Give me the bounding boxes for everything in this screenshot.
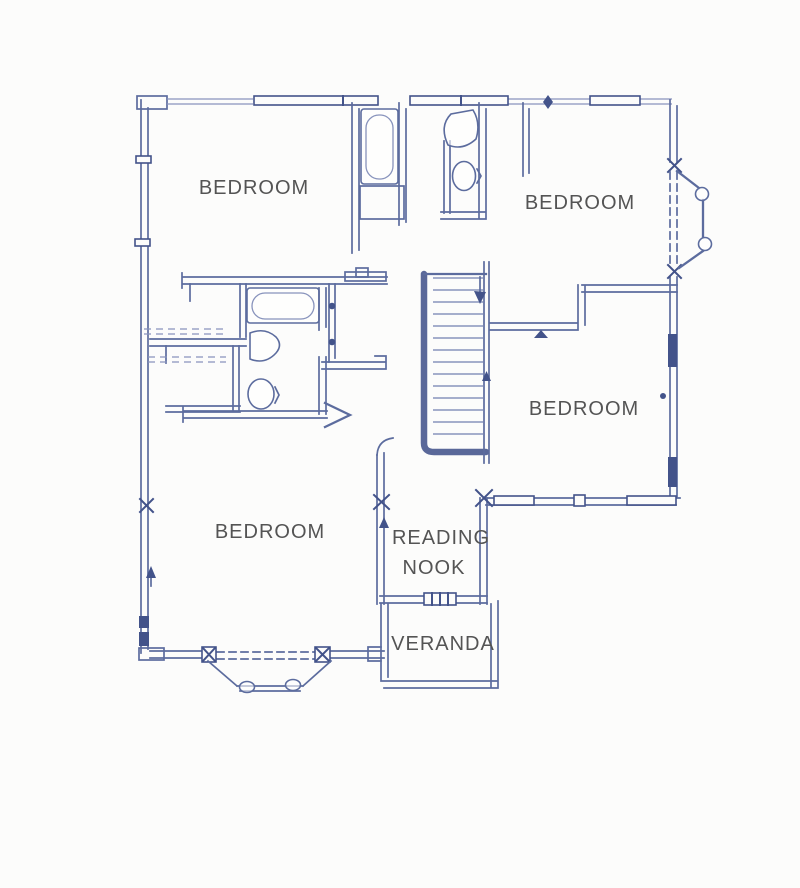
landing-walls	[490, 285, 677, 330]
bedroom-entry-wall	[183, 407, 327, 422]
bay-window-post-knob	[696, 188, 709, 201]
stair-rail	[424, 274, 486, 452]
sink-fixture	[444, 110, 478, 147]
top-wall-window	[254, 96, 378, 105]
room-label-bedroom-top-left: BEDROOM	[199, 177, 309, 199]
left-wall-window-block	[139, 632, 149, 646]
top-wall-diamond-marker	[543, 95, 553, 109]
staircase	[424, 262, 491, 463]
left-wall-window-block	[139, 616, 149, 628]
nook-wall-curved-end	[377, 438, 393, 455]
top-wall-window	[410, 96, 508, 105]
bay-window-bottom-left	[150, 647, 384, 693]
bay-window-post-knob	[286, 680, 301, 691]
room-label-veranda: VERANDA	[391, 633, 495, 655]
middle-bathrooms-and-closets	[144, 268, 387, 427]
toilet-fixture	[248, 379, 274, 409]
top-wall-window	[590, 96, 640, 105]
right-wall-window-block	[668, 334, 677, 367]
left-wall-window-x-marker	[140, 499, 153, 512]
room-label-reading: READING	[392, 527, 490, 549]
right-exterior-wall-upper	[670, 100, 677, 162]
bay-window-post-knob	[699, 238, 712, 251]
toilet-room-wall	[319, 357, 326, 414]
bottom-wall-post	[574, 495, 585, 506]
floor-plan-page: BEDROOM BEDROOM BEDROOM BEDROOM READING …	[0, 0, 800, 888]
upper-bathrooms	[345, 103, 486, 281]
nook-wall-arrow	[379, 517, 389, 528]
room-label-bedroom-bottom-left: BEDROOM	[215, 521, 325, 543]
room-label-nook: NOOK	[403, 557, 466, 579]
closet-rod-dashed	[144, 329, 228, 334]
landing-and-mid-right-bedroom-walls	[486, 103, 680, 506]
stair-treads	[433, 278, 483, 434]
bay-window-angled-walls	[677, 171, 703, 268]
toilet-fixture	[453, 162, 476, 191]
left-wall-tick	[136, 156, 151, 163]
floor-plan-drawing: BEDROOM BEDROOM BEDROOM BEDROOM READING …	[0, 0, 800, 888]
bottom-wall-window	[627, 496, 676, 505]
room-labels: BEDROOM BEDROOM BEDROOM BEDROOM READING …	[199, 177, 639, 655]
door-hinge-dot	[329, 303, 336, 310]
veranda-wall-hook	[368, 647, 381, 661]
right-wall-window-block	[668, 457, 677, 487]
bottom-wall-window	[494, 496, 534, 505]
nook-right-wall	[480, 498, 487, 604]
bay-dashed-wall-line	[217, 652, 315, 659]
entry-arrow	[325, 403, 350, 427]
bedroom-divider-stub-wall	[523, 103, 529, 176]
linen-shelf	[360, 186, 404, 219]
toilet-pointer	[275, 387, 279, 403]
nook-left-wall	[377, 453, 384, 604]
wall-dot-marker	[660, 393, 666, 399]
bay-window-dashed-wall-line	[670, 172, 677, 265]
bath-right-wall	[329, 284, 335, 362]
left-wall-tick	[135, 239, 150, 246]
left-exterior-wall	[141, 100, 148, 653]
sink-fixture	[250, 331, 280, 361]
bay-angled-walls	[208, 661, 331, 691]
closet-rod-dashed	[148, 357, 226, 362]
room-label-bedroom-top-right: BEDROOM	[525, 192, 635, 214]
door-hinge-dot	[329, 339, 336, 346]
bay-window-post-knob	[240, 682, 255, 693]
vestibule-wall	[322, 356, 386, 369]
door-marker-triangle	[534, 330, 548, 338]
closet-divider-wall	[150, 339, 246, 346]
closet-b-walls	[166, 346, 240, 412]
tub-partition-wall	[319, 288, 326, 330]
bay-window-top-right	[668, 159, 712, 278]
room-label-bedroom-mid-right: BEDROOM	[529, 398, 639, 420]
